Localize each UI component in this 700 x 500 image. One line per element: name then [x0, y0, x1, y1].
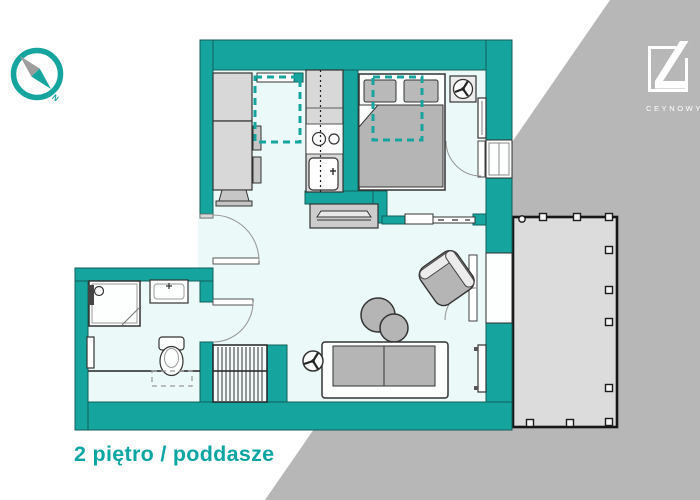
hall-door-leaf [213, 258, 259, 264]
radiator [478, 345, 486, 392]
shower [88, 281, 140, 326]
tv-icon [317, 211, 371, 217]
terrace [513, 214, 617, 428]
cabinet-door-flap [253, 157, 261, 183]
ceiling-fan-icon [450, 76, 476, 102]
tv-sideboard [310, 204, 378, 228]
washbasin [150, 280, 188, 303]
wall-right-a [486, 40, 512, 140]
wall-stairs-right [267, 345, 287, 402]
wall-bath-left [75, 268, 88, 430]
wall-kitchen-bedroom [343, 70, 358, 193]
wall-top [200, 40, 512, 70]
shower-head-icon [95, 287, 104, 296]
floor-plan-page: N CEYNOWY 2 piętro / poddasze [0, 0, 700, 500]
brand-logo-bar [655, 81, 687, 89]
shower-panel [88, 285, 94, 305]
wall-bedroom-living [305, 191, 382, 204]
sofa [322, 342, 448, 398]
wall-bottom [75, 402, 512, 430]
wall-left-upper [200, 40, 213, 218]
wall-right-b [486, 178, 512, 253]
ceiling-fan-icon [303, 351, 323, 371]
wall-pocket [382, 216, 405, 224]
wall-end-cap [200, 214, 213, 218]
sliding-door-pocket [405, 214, 433, 224]
coffee-table [380, 314, 408, 342]
pillow [364, 80, 396, 102]
floor-title: 2 piętro / poddasze [74, 442, 274, 466]
stool-base [216, 201, 252, 206]
bathroom-door-leaf [213, 299, 253, 305]
tall-cabinet [213, 121, 252, 190]
wall-bath-stub [200, 281, 213, 302]
wall-bath-right [200, 342, 213, 402]
bedroom-window-leaf [478, 141, 485, 177]
cooktop [306, 124, 343, 154]
toilet [159, 337, 184, 376]
staircase [213, 345, 267, 402]
sofa-cushion [333, 346, 384, 386]
stool [219, 190, 249, 201]
sofa-cushion [384, 346, 435, 386]
fridge-cabinet [213, 73, 252, 121]
wall-bath-top [75, 268, 213, 281]
brand-name: CEYNOWY [646, 104, 700, 113]
towel-radiator [87, 337, 94, 368]
